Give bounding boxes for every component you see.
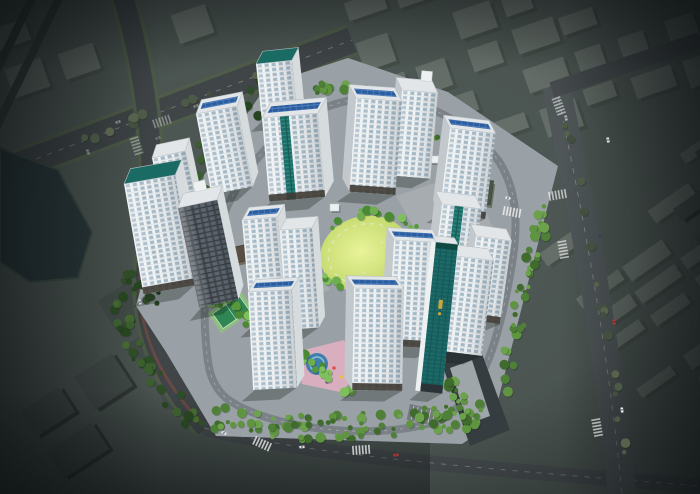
tree — [298, 434, 304, 440]
tree — [530, 231, 540, 241]
tree — [526, 285, 530, 289]
tree — [535, 252, 541, 258]
tree — [247, 87, 254, 94]
car-windshield — [621, 409, 623, 411]
tree — [237, 408, 247, 418]
tree — [249, 428, 254, 433]
tree — [342, 431, 349, 438]
tree — [183, 411, 193, 421]
tree — [622, 450, 626, 454]
tree — [431, 406, 437, 412]
rooftop-penthouse — [193, 180, 207, 192]
tree — [459, 413, 466, 420]
tree — [499, 360, 509, 370]
car — [299, 446, 304, 449]
tree — [308, 359, 316, 367]
tree — [512, 312, 517, 317]
tree — [146, 378, 154, 386]
tree — [312, 366, 319, 373]
tree — [603, 330, 613, 340]
tree — [315, 91, 319, 95]
tree — [464, 408, 470, 414]
tree — [238, 421, 245, 428]
tree — [613, 391, 618, 396]
tree — [114, 301, 119, 306]
tree — [336, 283, 343, 290]
tree — [358, 208, 362, 212]
tree — [195, 142, 201, 148]
tree — [445, 378, 454, 387]
tree — [117, 325, 123, 331]
tree — [285, 414, 291, 420]
tree — [515, 289, 519, 293]
tree — [503, 387, 513, 397]
tree — [359, 421, 364, 426]
tree — [322, 273, 327, 278]
tree — [126, 321, 134, 329]
tower-south-a — [340, 276, 404, 402]
tree — [172, 407, 181, 416]
tree — [90, 134, 100, 144]
tree — [460, 392, 467, 399]
tree — [335, 434, 343, 442]
tree — [305, 414, 312, 421]
tree — [128, 269, 136, 277]
tree — [451, 420, 460, 429]
tree — [561, 122, 568, 129]
tree — [397, 414, 402, 419]
tree — [330, 418, 336, 424]
tree — [330, 226, 335, 231]
car-windshield — [599, 235, 601, 237]
solar-panels — [351, 279, 398, 285]
tree — [443, 410, 453, 420]
tree — [521, 293, 530, 302]
tree — [212, 406, 221, 415]
tree — [419, 425, 425, 431]
tree — [129, 113, 139, 123]
tree — [326, 420, 331, 425]
tree — [217, 423, 224, 430]
car-windshield — [395, 454, 397, 456]
tree — [339, 85, 349, 95]
tree — [376, 410, 386, 420]
tree — [315, 432, 325, 442]
tree — [271, 416, 275, 420]
rendering-canvas — [0, 0, 700, 494]
tree — [197, 156, 205, 164]
tree — [136, 340, 142, 346]
tower-base — [352, 383, 402, 391]
tree — [446, 426, 453, 433]
tree — [521, 253, 531, 263]
tree — [106, 127, 115, 136]
tree — [475, 399, 485, 409]
tree — [342, 416, 347, 421]
tree — [298, 413, 304, 419]
tree — [132, 287, 137, 292]
tree — [305, 421, 311, 427]
tree — [384, 212, 394, 222]
tree — [128, 348, 138, 358]
tree — [254, 410, 261, 417]
tree — [370, 206, 379, 215]
tree — [587, 241, 597, 251]
tree — [501, 346, 509, 354]
tree — [444, 405, 448, 409]
annex-building — [330, 204, 339, 211]
tree — [398, 214, 407, 223]
tree — [391, 427, 395, 431]
tree — [449, 393, 457, 401]
tree — [348, 425, 353, 430]
tree — [247, 419, 255, 427]
tree — [565, 131, 570, 136]
tree — [601, 312, 606, 317]
tree — [374, 428, 381, 435]
tree — [406, 420, 414, 428]
rooftop-penthouse — [421, 71, 433, 82]
tree — [422, 405, 427, 410]
tree — [533, 210, 542, 219]
tree — [456, 404, 463, 411]
tree — [319, 366, 325, 372]
tree — [517, 325, 524, 332]
tree — [615, 416, 620, 421]
tree — [122, 341, 130, 349]
tree — [268, 423, 276, 431]
tree — [614, 383, 622, 391]
right-shade — [560, 0, 700, 494]
tree — [242, 321, 248, 327]
tree — [220, 403, 229, 412]
play-equipment — [332, 366, 336, 370]
tree — [270, 435, 274, 439]
tree — [542, 204, 547, 209]
tree — [357, 212, 365, 220]
aerial-rendering-apartment-complex — [0, 0, 700, 494]
car — [393, 453, 398, 456]
tree — [510, 301, 518, 309]
tree — [166, 106, 170, 110]
tree — [162, 402, 168, 408]
tree — [432, 410, 439, 417]
tree — [379, 422, 385, 428]
tree — [137, 359, 145, 367]
tree — [525, 270, 531, 276]
tree — [146, 368, 153, 375]
tree — [594, 282, 599, 287]
tree — [358, 433, 364, 439]
tree — [81, 134, 88, 141]
tree — [530, 260, 539, 269]
tree — [539, 223, 549, 233]
tree — [234, 304, 241, 311]
tree — [199, 420, 205, 426]
tree — [230, 422, 236, 428]
tree — [435, 134, 440, 139]
tree — [207, 91, 212, 96]
tree — [415, 413, 425, 423]
car-windshield — [301, 446, 303, 448]
tree — [391, 432, 397, 438]
tree — [291, 421, 299, 429]
tree — [510, 362, 518, 370]
tree — [478, 408, 483, 413]
tree — [526, 247, 532, 253]
tree — [580, 208, 588, 216]
tree — [181, 99, 189, 107]
tree — [501, 374, 510, 383]
tree — [158, 371, 163, 376]
tree — [611, 370, 619, 378]
tree — [442, 424, 447, 429]
tree — [318, 80, 324, 86]
play-equipment — [339, 375, 343, 379]
tree — [511, 323, 515, 327]
tree — [363, 426, 369, 432]
tree — [118, 292, 127, 301]
tree — [577, 177, 585, 185]
tree — [349, 435, 355, 441]
tree — [567, 135, 575, 143]
tree — [621, 438, 631, 448]
tree — [226, 420, 230, 424]
tree — [156, 384, 165, 393]
tree — [324, 375, 332, 383]
tree — [334, 217, 342, 225]
tree — [317, 419, 323, 425]
tree — [133, 292, 137, 296]
tree — [414, 224, 419, 229]
